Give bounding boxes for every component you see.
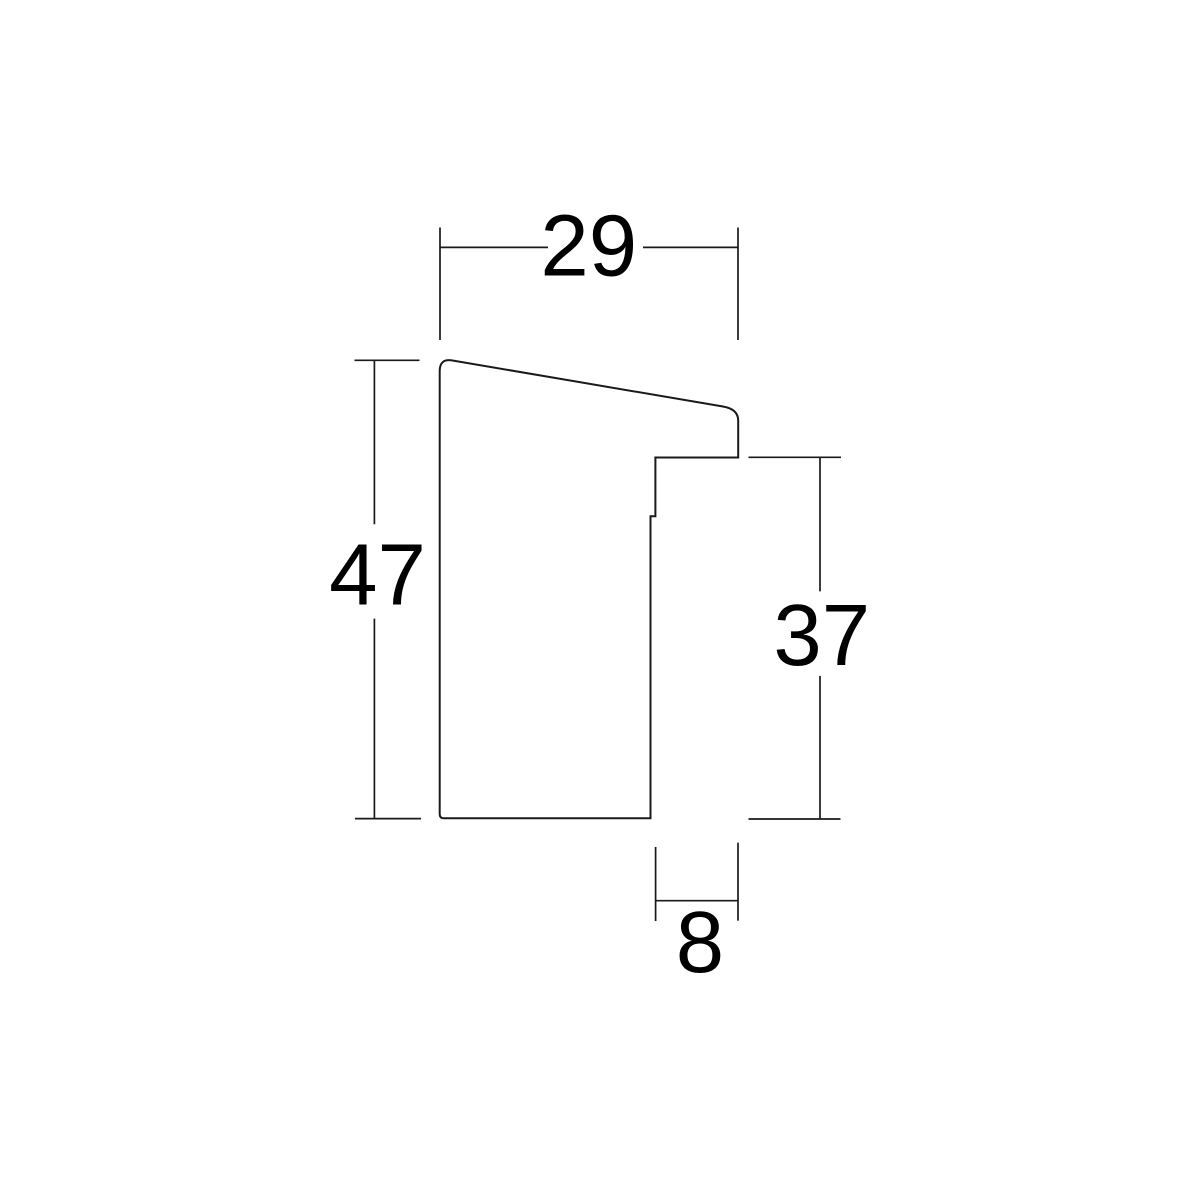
svg-text:47: 47 <box>329 526 426 623</box>
svg-text:37: 37 <box>773 587 870 684</box>
svg-text:8: 8 <box>676 894 724 991</box>
svg-text:29: 29 <box>540 197 637 294</box>
